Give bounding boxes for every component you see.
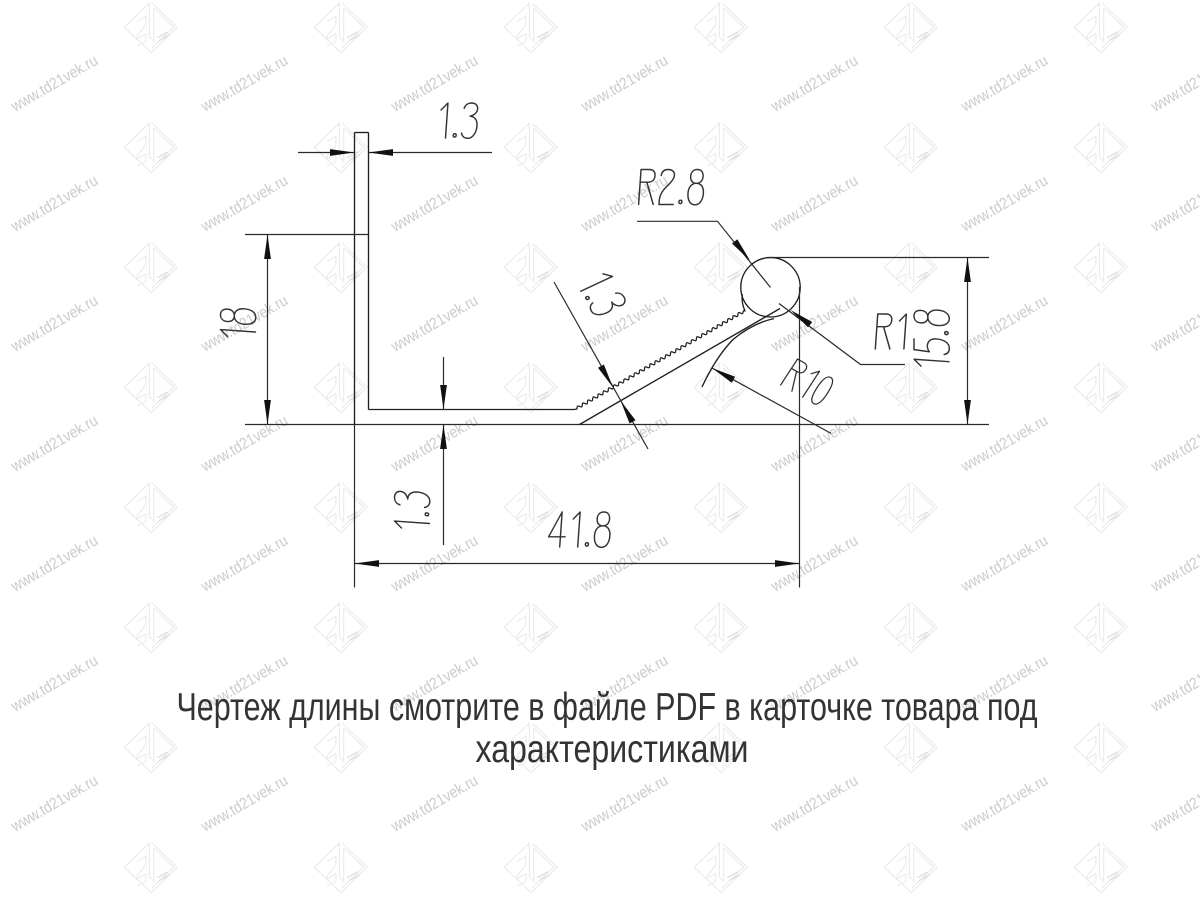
- svg-text:Чертеж длины смотрите в файле: Чертеж длины смотрите в файле PDF в карт…: [177, 686, 1038, 729]
- svg-text:характеристиками: характеристиками: [476, 728, 749, 771]
